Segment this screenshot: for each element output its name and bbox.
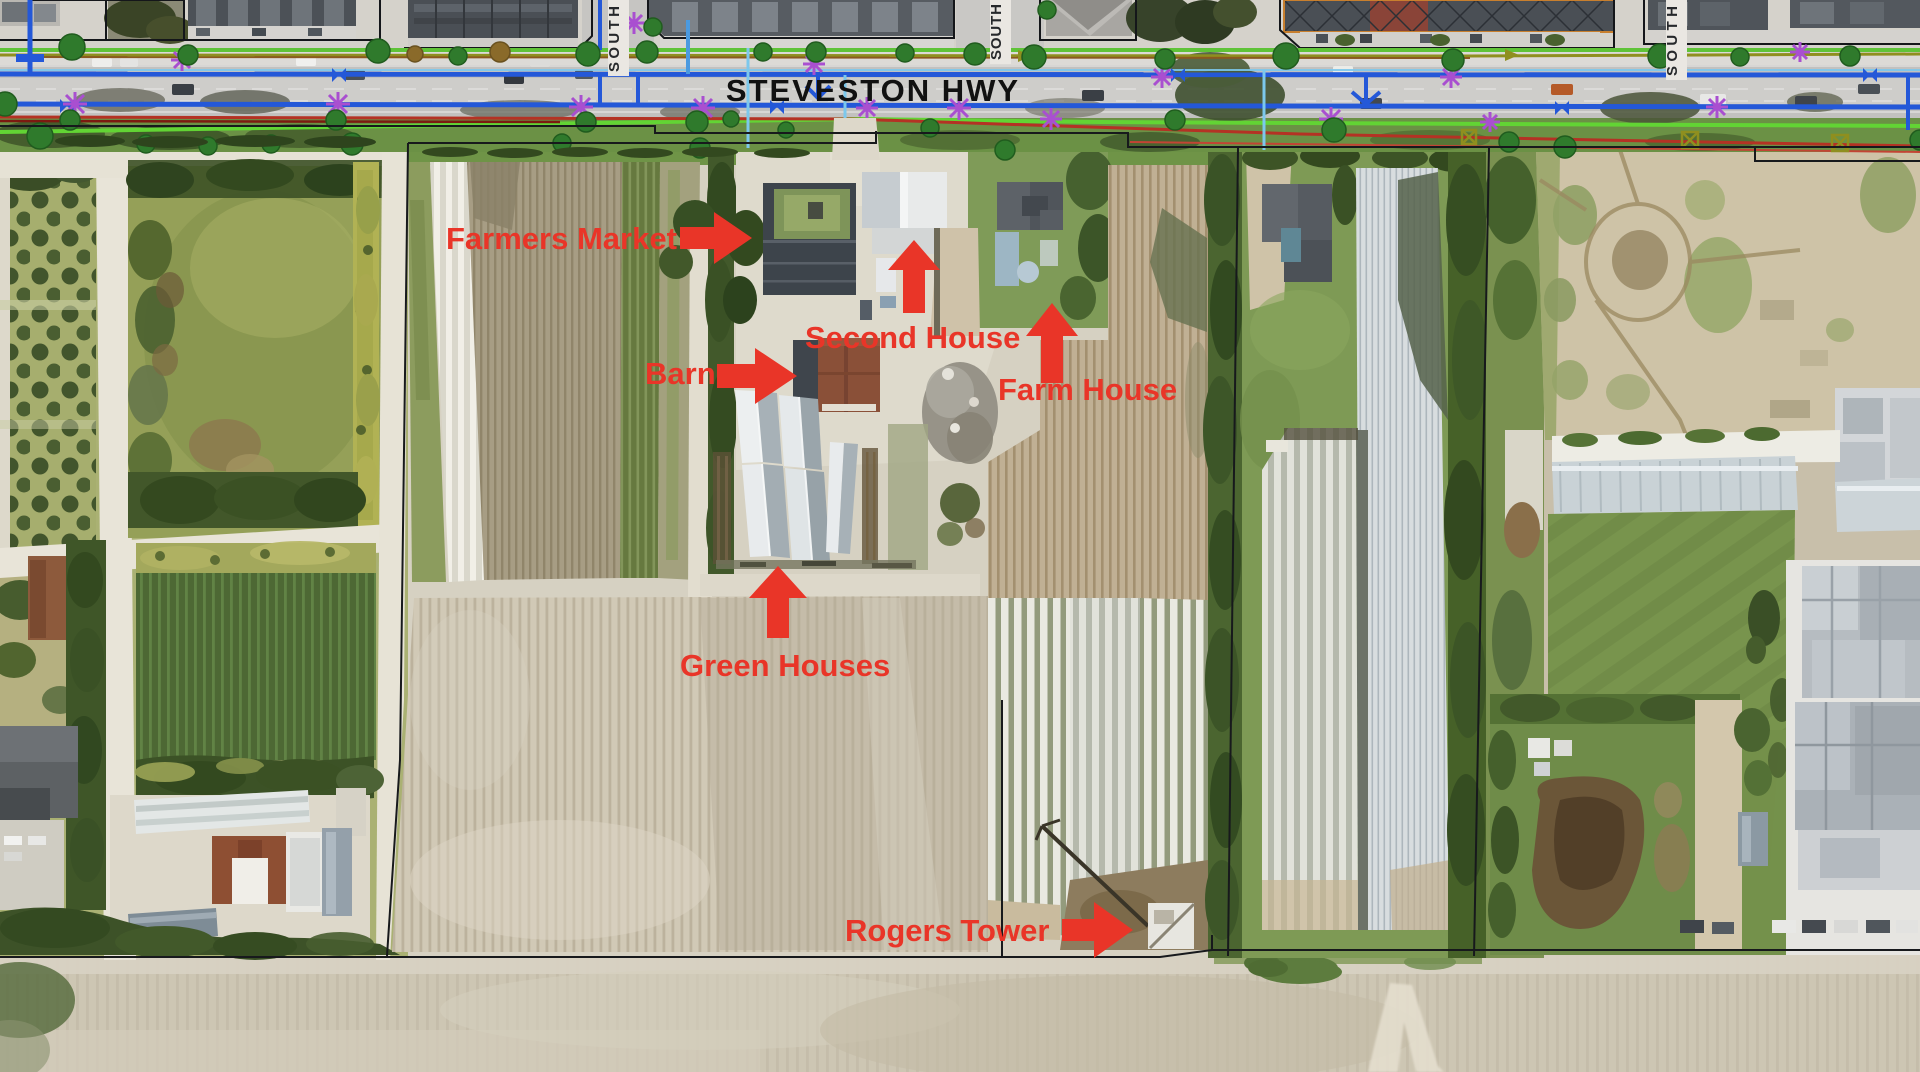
- svg-text:SOUTH: SOUTH: [606, 6, 623, 72]
- svg-text:Rogers Tower: Rogers Tower: [845, 913, 1049, 948]
- svg-text:SOUTH: SOUTH: [988, 4, 1005, 60]
- svg-text:Farmers Market: Farmers Market: [446, 221, 677, 256]
- svg-text:Farm House: Farm House: [998, 372, 1177, 407]
- svg-text:STEVESTON HWY: STEVESTON HWY: [726, 73, 1020, 108]
- svg-text:Green Houses: Green Houses: [680, 648, 890, 683]
- svg-text:Second House: Second House: [805, 320, 1020, 355]
- svg-text:Barn: Barn: [645, 356, 716, 391]
